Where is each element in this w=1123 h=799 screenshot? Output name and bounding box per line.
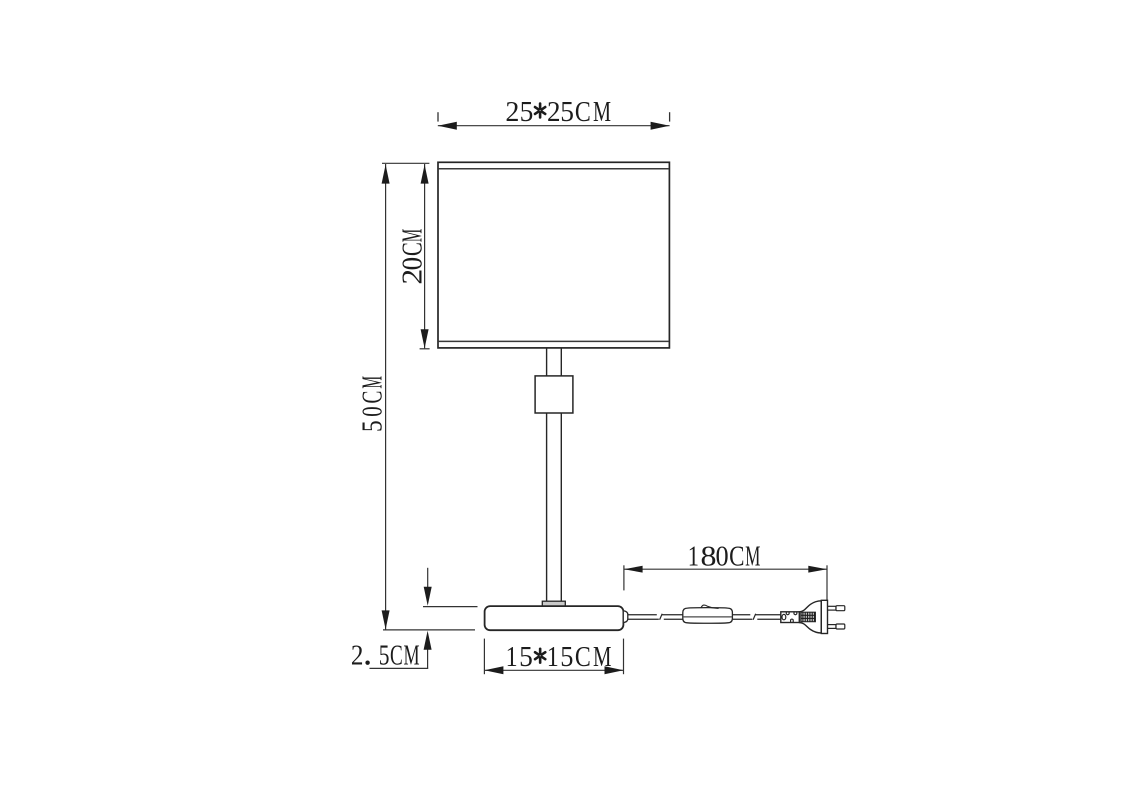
svg-text:M: M [745,541,760,573]
svg-text:C: C [575,641,591,673]
svg-text:C: C [396,242,428,256]
svg-text:2: 2 [351,640,364,672]
svg-text:M: M [404,640,420,672]
svg-text:5: 5 [357,420,389,432]
svg-text:1: 1 [547,641,559,673]
svg-text:C: C [575,96,591,128]
svg-text:M: M [396,229,428,243]
svg-text:1: 1 [506,641,518,673]
svg-text:5: 5 [560,96,574,128]
svg-text:C: C [729,541,744,573]
svg-text:8: 8 [701,541,717,573]
svg-text:M: M [357,376,389,389]
svg-text:5: 5 [379,640,390,672]
svg-text:2: 2 [547,96,561,128]
svg-text:5: 5 [519,641,533,673]
svg-text:5: 5 [520,96,534,128]
svg-text:M: M [593,96,611,128]
svg-text:1: 1 [688,541,699,573]
svg-text:M: M [593,641,611,673]
svg-text:0: 0 [396,257,428,271]
svg-text:0: 0 [357,406,389,416]
svg-text:0: 0 [715,541,728,573]
svg-text:C: C [390,640,403,672]
svg-text:2: 2 [505,96,519,128]
svg-text:5: 5 [560,641,573,673]
svg-text:C: C [357,391,389,404]
